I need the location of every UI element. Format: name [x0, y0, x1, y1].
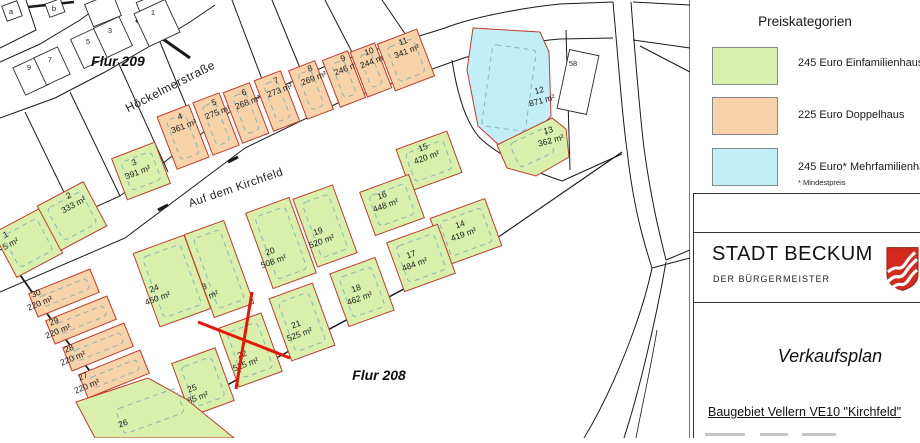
house-number: 58	[569, 59, 577, 68]
map-linework	[652, 258, 690, 268]
panel-border	[693, 193, 694, 438]
legend-label-doppelhaus: 225 Euro Doppelhaus	[798, 109, 904, 121]
house-number: 7	[48, 55, 52, 64]
legend-swatch-doppelhaus	[712, 97, 778, 135]
map-canvas: 15 m²2333 m²3391 m²4361 m²5275 m²6268 m²…	[0, 0, 690, 438]
legend-swatch-mehrfamilienhaus	[712, 148, 778, 186]
partial-text-mark	[705, 433, 745, 436]
side-panel: Preiskategorien 245 Euro Einfamilienhaus…	[690, 0, 920, 438]
house-number: 5	[86, 37, 90, 46]
project-name: Baugebiet Vellern VE10 "Kirchfeld"	[708, 405, 901, 419]
map-linework	[562, 154, 622, 181]
map-linework	[640, 46, 690, 72]
panel-divider	[693, 193, 920, 194]
plot-21: 21525 m²	[269, 283, 335, 361]
map-linework	[325, 0, 355, 58]
partial-text-mark	[802, 433, 836, 436]
mayor-subtitle: DER BÜRGERMEISTER	[713, 274, 830, 284]
legend-label-mehrfamilienhaus: 245 Euro* Mehrfamilienhaus	[798, 161, 920, 173]
house-number: b	[52, 4, 56, 13]
city-title: STADT BECKUM	[712, 243, 873, 266]
panel-divider	[693, 232, 920, 233]
building-58: 58	[557, 50, 599, 115]
flur-label: Flur 209	[91, 53, 145, 69]
plan-title: Verkaufsplan	[740, 346, 920, 367]
building-a: a	[2, 1, 23, 22]
house-number: 9	[27, 63, 31, 72]
plot-18: 18462 m²	[330, 257, 394, 326]
street-label-auf-dem-kirchfeld: Auf dem Kirchfeld	[187, 166, 285, 210]
legend-title: Preiskategorien	[690, 14, 920, 29]
partial-text-mark	[760, 433, 788, 436]
cadastral-map: 15 m²2333 m²3391 m²4361 m²5275 m²6268 m²…	[0, 0, 690, 438]
legend-footnote: * Mindestpreis	[798, 178, 846, 187]
legend-label-einfamilienhaus: 245 Euro Einfamilienhaus	[798, 57, 920, 69]
map-linework	[70, 92, 120, 196]
map-linework	[584, 268, 652, 438]
plot-3: 3391 m²	[112, 142, 171, 200]
house-number: 1	[151, 8, 155, 17]
verkaufsplan-page: { "legend": { "title": "Preiskategorien"…	[0, 0, 920, 438]
flur-label: Flur 208	[352, 367, 406, 383]
panel-divider	[693, 302, 920, 303]
map-linework	[633, 2, 690, 5]
map-linework	[382, 0, 408, 38]
beckum-coat-of-arms-icon	[886, 246, 919, 297]
building-outline	[557, 50, 599, 115]
legend-swatch-einfamilienhaus	[712, 47, 778, 85]
house-number: 3	[108, 26, 112, 35]
building-b: b	[45, 0, 65, 17]
map-linework	[624, 262, 666, 438]
